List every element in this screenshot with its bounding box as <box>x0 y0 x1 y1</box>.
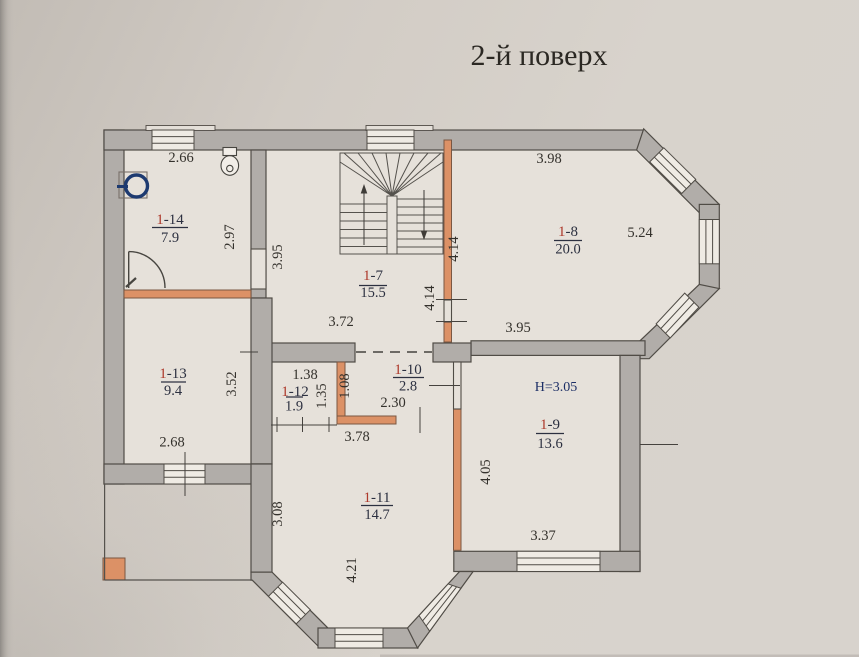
svg-text:1-10: 1-10 <box>394 362 422 378</box>
svg-text:3.37: 3.37 <box>530 528 555 544</box>
svg-text:1-9: 1-9 <box>540 417 560 433</box>
svg-text:9.4: 9.4 <box>164 383 183 399</box>
svg-text:4.14: 4.14 <box>422 285 438 311</box>
svg-text:14.7: 14.7 <box>364 507 389 523</box>
svg-text:3.08: 3.08 <box>270 501 286 526</box>
svg-text:1.9: 1.9 <box>285 399 303 415</box>
svg-text:2.8: 2.8 <box>399 379 417 395</box>
svg-text:5.24: 5.24 <box>627 225 653 241</box>
svg-text:3.52: 3.52 <box>224 371 240 396</box>
svg-text:7.9: 7.9 <box>161 230 179 246</box>
svg-text:2.30: 2.30 <box>380 395 405 411</box>
svg-text:1-8: 1-8 <box>558 224 578 240</box>
svg-text:3.72: 3.72 <box>328 314 353 330</box>
svg-text:1.08: 1.08 <box>337 373 353 398</box>
svg-text:13.6: 13.6 <box>537 436 562 452</box>
svg-text:4.14: 4.14 <box>446 236 462 262</box>
svg-text:1-14: 1-14 <box>156 212 184 228</box>
svg-text:H=3.05: H=3.05 <box>535 380 578 395</box>
svg-text:2.68: 2.68 <box>159 435 184 451</box>
svg-text:1.35: 1.35 <box>314 383 330 408</box>
svg-text:1-13: 1-13 <box>159 366 187 382</box>
svg-text:2.66: 2.66 <box>168 150 193 166</box>
svg-text:2-й поверх: 2-й поверх <box>471 39 608 72</box>
svg-text:1.38: 1.38 <box>292 367 317 383</box>
svg-text:3.78: 3.78 <box>344 429 369 445</box>
svg-text:4.05: 4.05 <box>478 459 494 484</box>
svg-text:3.98: 3.98 <box>536 151 561 167</box>
svg-text:4.21: 4.21 <box>344 557 360 582</box>
svg-text:1-11: 1-11 <box>364 490 391 506</box>
svg-text:1-7: 1-7 <box>363 268 383 284</box>
svg-text:15.5: 15.5 <box>360 285 385 301</box>
svg-text:2.97: 2.97 <box>222 224 238 249</box>
svg-text:3.95: 3.95 <box>505 320 530 336</box>
svg-text:20.0: 20.0 <box>555 242 580 258</box>
svg-text:3.95: 3.95 <box>270 244 286 269</box>
